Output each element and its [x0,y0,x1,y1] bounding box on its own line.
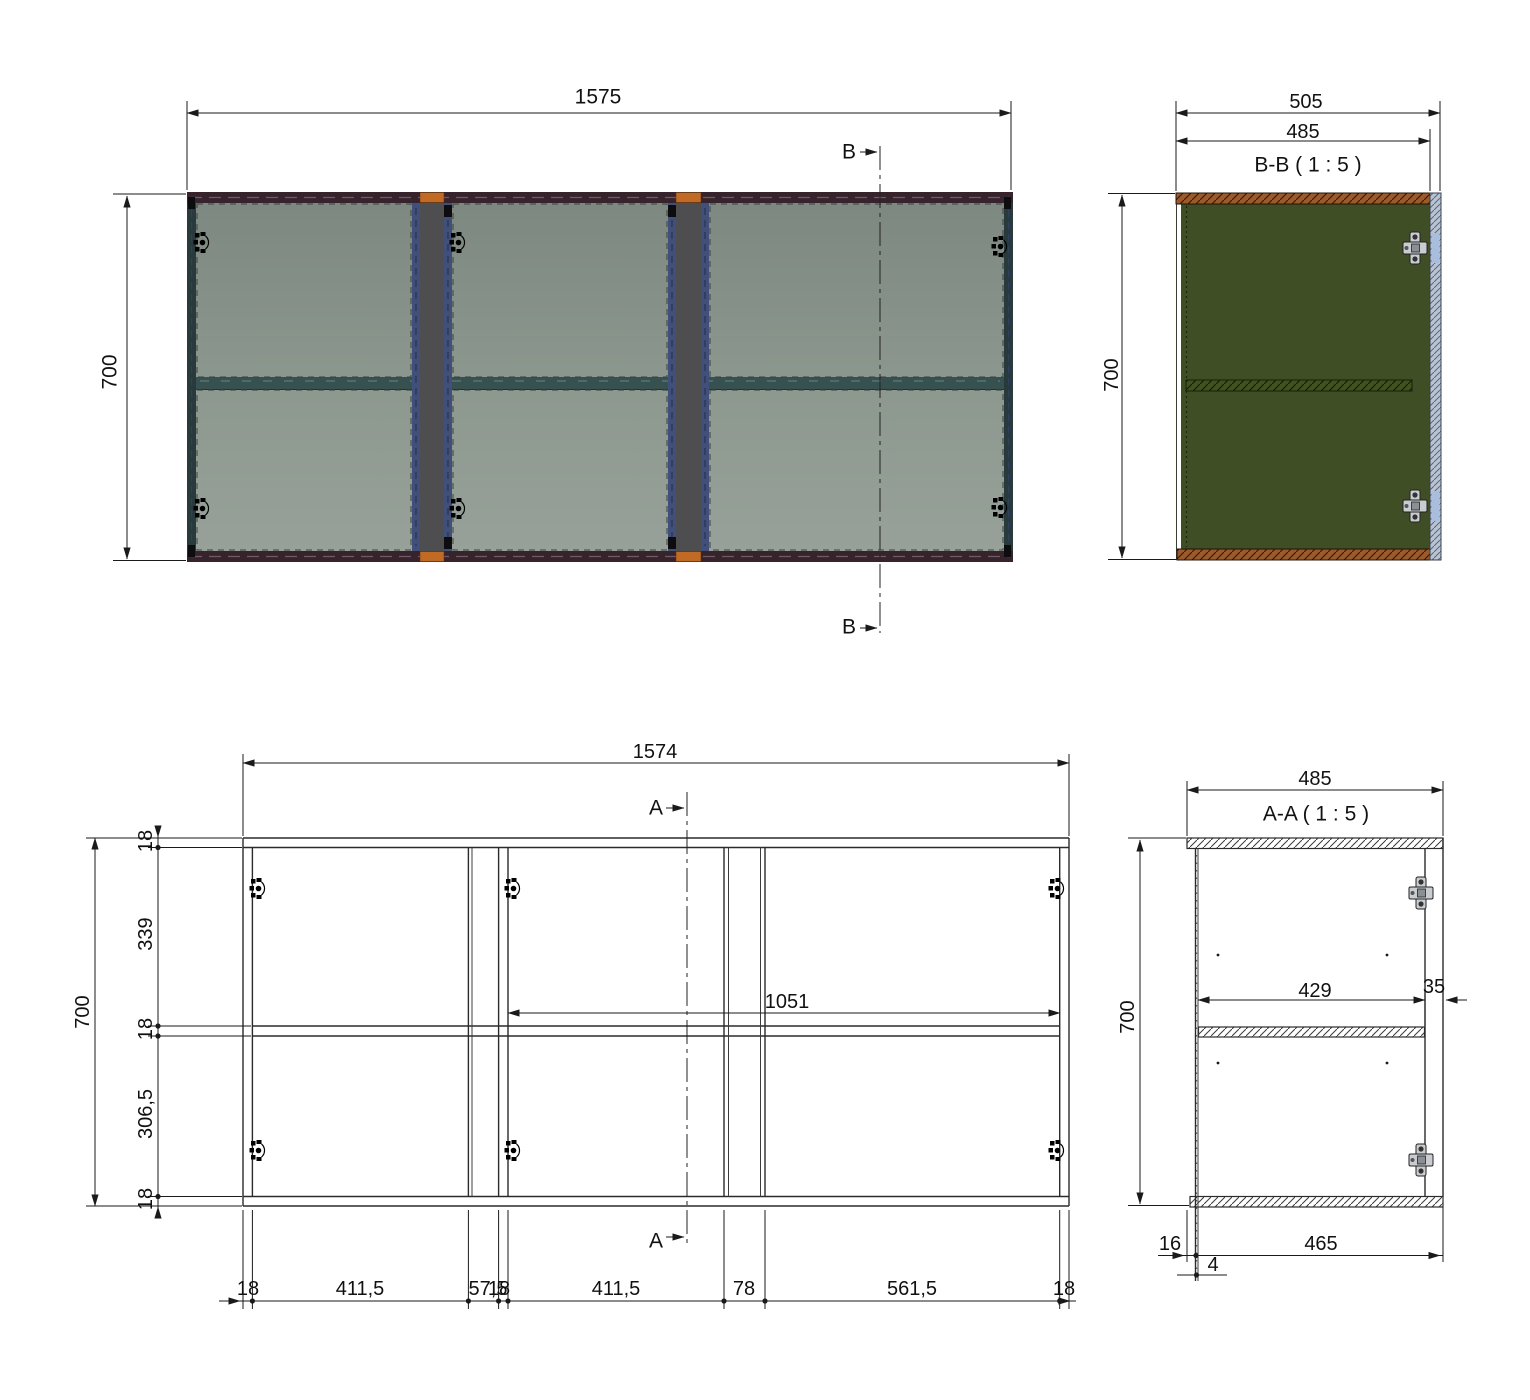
front-view-pictorial [113,101,1013,633]
dim-bchain-4: 411,5 [592,1279,641,1299]
hinge-hardware-icon [1409,1144,1433,1176]
dim-bchain-7: 18 [1053,1279,1075,1299]
divider-2 [668,203,709,551]
hinge-hardware-icon [1409,877,1433,909]
dim-bchain-5: 78 [733,1279,755,1299]
section-marker-b-bottom: B [842,617,856,638]
front-view-drawing [86,754,1076,1309]
dim-front-width: 1575 [575,87,622,108]
dim-aa-width: 485 [1298,769,1331,789]
hinge-icon [250,878,265,899]
hinge-icon [250,1140,265,1161]
dim-bb-height: 700 [1102,358,1122,391]
dim-chain-shelf-thickness: 18 [136,1018,156,1040]
dim-bchain-1: 411,5 [336,1279,385,1299]
hinge-icon [505,1140,520,1161]
section-bb-title: B-B ( 1 : 5 ) [1254,155,1361,176]
section-marker-a-bottom: A [649,1231,663,1252]
dim-aa-interior-depth: 429 [1298,981,1331,1001]
dim-aa-back-offset: 16 [1159,1234,1181,1254]
dim-bchain-0: 18 [237,1279,259,1299]
dim-chain-upper-space: 339 [136,917,156,950]
dim-bchain-6: 561,5 [887,1279,937,1299]
hinge-icon [1049,878,1064,899]
dim-aa-height: 700 [1118,1000,1138,1033]
dim-chain-bottom-panel: 18 [136,1188,156,1210]
dim-shelf-span: 1051 [765,992,810,1012]
dim-drawing-height: 700 [73,995,93,1028]
hinge-icon [505,878,520,899]
section-marker-a-top: A [649,798,663,819]
section-aa-title: A-A ( 1 : 5 ) [1263,804,1369,825]
dim-chain-lower-space: 306,5 [136,1089,156,1139]
dim-aa-front-panel: 35 [1423,977,1445,997]
dim-chain-top-panel: 18 [136,830,156,852]
cad-drawing-sheet: 1575 700 B B 505 485 B-B ( 1 : 5 ) 700 1… [0,0,1530,1400]
dim-bb-inner-depth: 485 [1286,122,1319,142]
cad-linework [0,0,1530,1400]
dim-bb-overall-depth: 505 [1289,92,1322,112]
divider-1 [412,203,452,551]
dim-aa-back-panel: 4 [1207,1255,1218,1275]
dim-front-height: 700 [100,354,121,389]
section-aa-view [1128,781,1467,1281]
dim-aa-bottom-span: 465 [1304,1234,1337,1254]
dim-bchain-3: 18 [488,1279,510,1299]
dim-drawing-width: 1574 [633,742,678,762]
hinge-icon [1049,1140,1064,1161]
section-marker-b-top: B [842,142,856,163]
